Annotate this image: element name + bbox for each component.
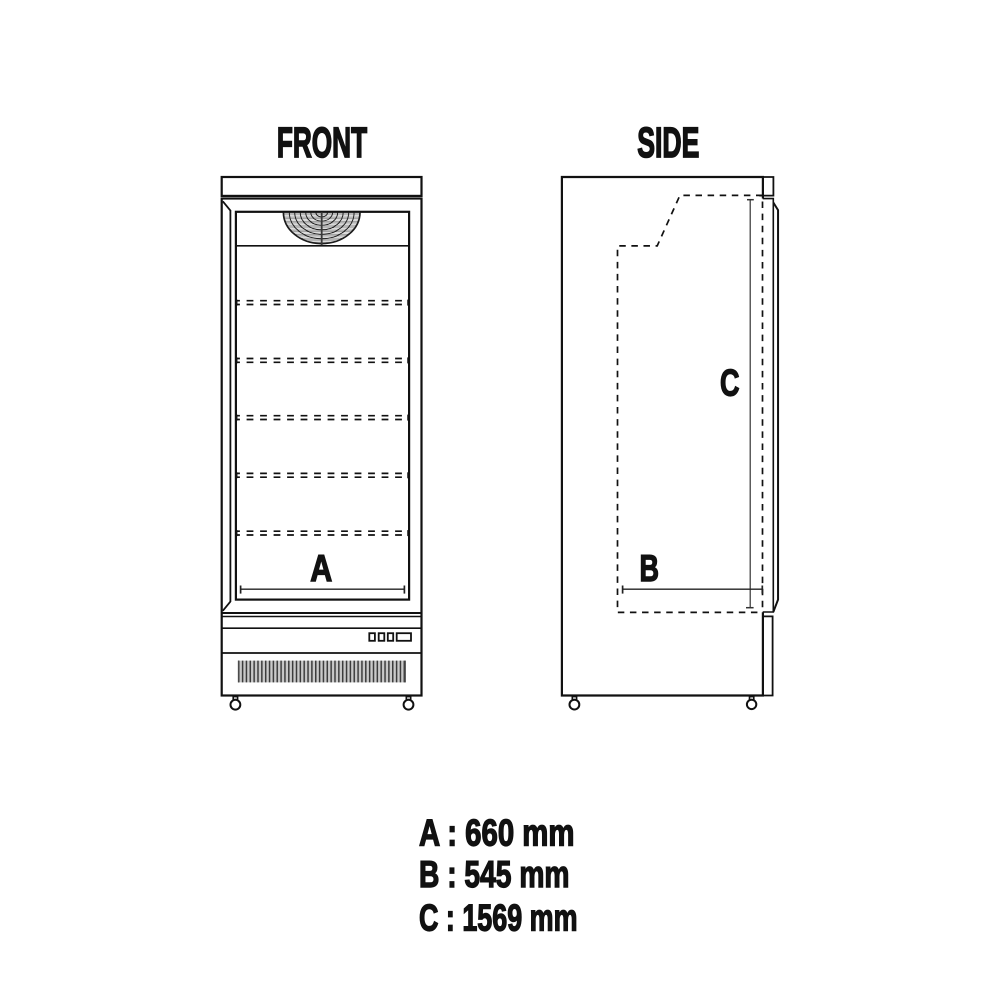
svg-text:A: A (310, 547, 332, 589)
svg-text:C: C (720, 362, 740, 404)
svg-text:A : 660 mm: A : 660 mm (419, 811, 575, 853)
svg-text:C : 1569 mm: C : 1569 mm (419, 897, 578, 939)
svg-text:B: B (640, 547, 660, 589)
svg-text:B : 545 mm: B : 545 mm (419, 853, 570, 895)
svg-text:SIDE: SIDE (637, 120, 699, 167)
svg-text:FRONT: FRONT (277, 120, 367, 167)
